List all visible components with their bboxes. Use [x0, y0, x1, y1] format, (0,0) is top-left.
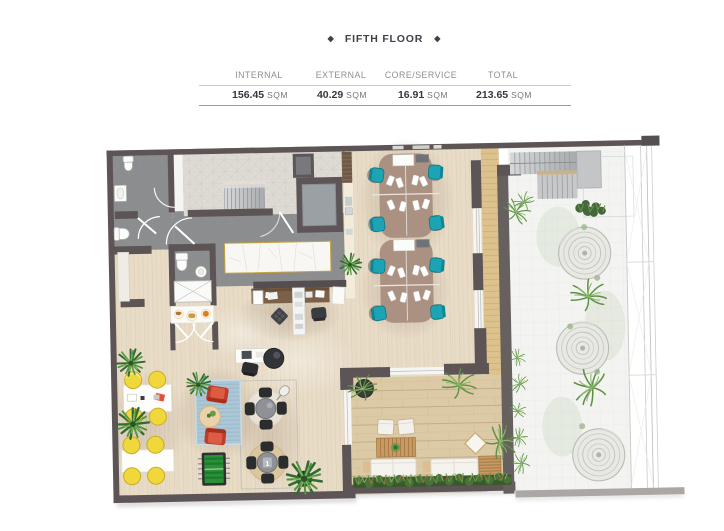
svg-text:1: 1 — [265, 461, 269, 468]
